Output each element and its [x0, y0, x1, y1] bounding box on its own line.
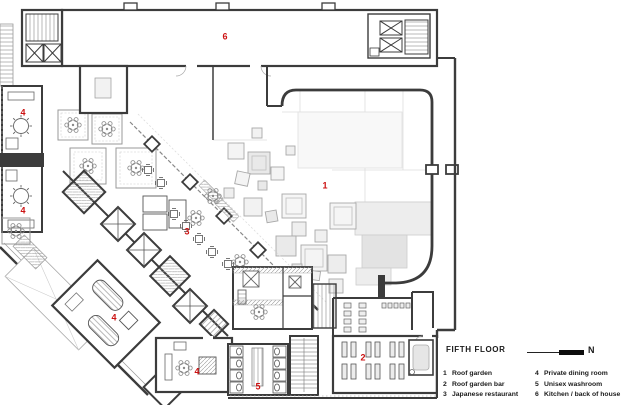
stairs-icon: [200, 310, 228, 338]
north-arrow-line: [527, 352, 559, 353]
private-dining-left: [0, 86, 44, 232]
vanity-counter: [252, 348, 263, 386]
planting-icon: [128, 161, 144, 176]
planting-icon: [65, 118, 81, 133]
north-label: N: [588, 345, 595, 355]
legend-item: 6Kitchen / back of house: [535, 387, 640, 398]
wall-connector: [426, 165, 438, 174]
grand-stairs: [290, 336, 318, 395]
floor-plan-page: 644134425 FIFTH FLOOR N 1Roof garden 2Ro…: [0, 0, 640, 405]
legend-column-1: 1Roof garden 2Roof garden bar 3Japanese …: [443, 366, 533, 398]
tatami-suite: [233, 267, 312, 329]
piano: [409, 340, 433, 375]
legend-item: 4Private dining room: [535, 366, 640, 377]
balcony-strip: [0, 24, 13, 86]
floor-title: FIFTH FLOOR: [446, 345, 505, 354]
top-left-core: [0, 10, 62, 86]
legend-item-number: 6: [535, 390, 544, 401]
private-dining-bottom: [156, 336, 232, 392]
legend-item: 2Roof garden bar: [443, 377, 533, 388]
terrace-seating: [344, 303, 410, 332]
private-dining-sw: [52, 260, 159, 367]
legend-item: 3Japanese restaurant: [443, 387, 533, 398]
roof-notch: [216, 3, 229, 10]
service-room: [80, 66, 127, 113]
north-arrow-icon: [559, 350, 584, 355]
legend-item: 5Unisex washroom: [535, 377, 640, 388]
legend-item-label: Kitchen / back of house: [544, 391, 620, 398]
roof-notch: [322, 3, 335, 10]
link-bridge: [0, 153, 44, 167]
legend-item: 1Roof garden: [443, 366, 533, 377]
legend-item-label: Roof garden: [452, 370, 492, 377]
wall-connector: [446, 165, 458, 174]
roof-garden-room: [213, 66, 458, 297]
washroom: [228, 344, 288, 395]
roof-notch: [124, 3, 137, 10]
legend: FIFTH FLOOR N 1Roof garden 2Roof garden …: [438, 338, 640, 405]
stairs-icon: [26, 14, 58, 41]
stairs-icon: [405, 20, 428, 54]
legend-column-2: 4Private dining room 5Unisex washroom 6K…: [535, 366, 640, 398]
legend-item-label: Japanese restaurant: [452, 391, 518, 398]
stairs-icon: [150, 256, 190, 296]
legend-item-number: 3: [443, 390, 452, 401]
legend-item-label: Private dining room: [544, 370, 608, 377]
planting-icon: [99, 122, 115, 137]
